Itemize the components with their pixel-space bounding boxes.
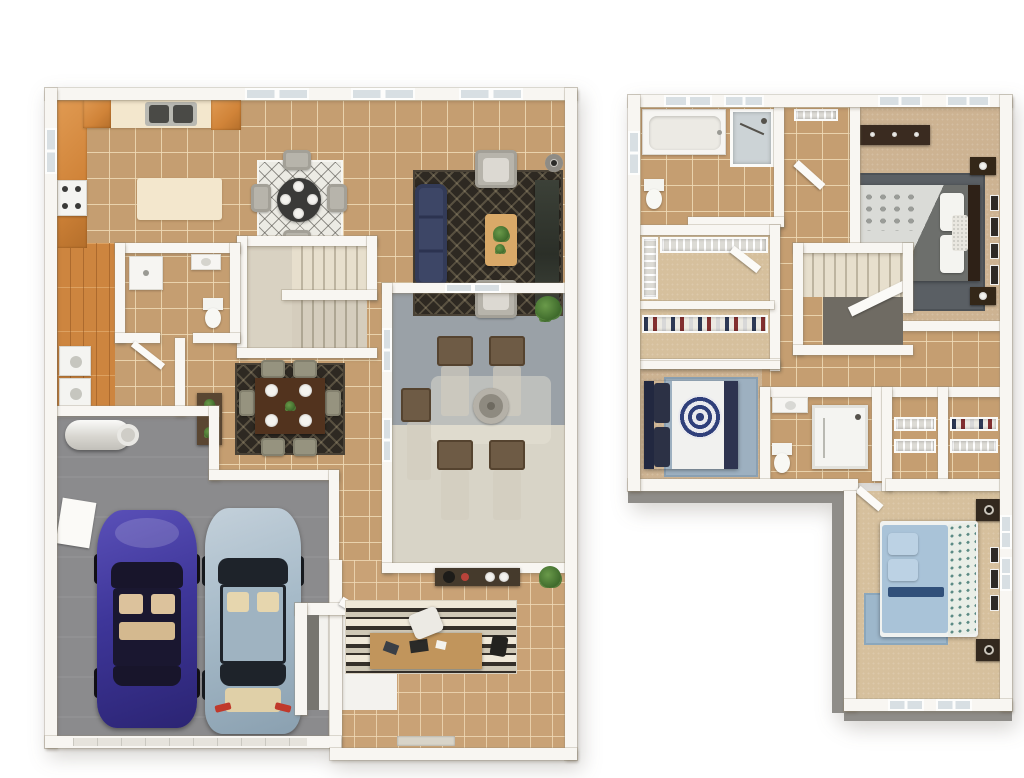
second-floor-plan bbox=[628, 95, 1012, 725]
water-heater bbox=[65, 420, 131, 450]
nightstand bbox=[970, 157, 996, 175]
patio-window bbox=[445, 283, 501, 293]
window bbox=[459, 88, 523, 100]
window bbox=[946, 95, 990, 107]
stairwell-wall bbox=[793, 243, 803, 355]
window bbox=[878, 95, 922, 107]
breakfast-chair bbox=[283, 150, 311, 170]
patio-lounger bbox=[441, 366, 469, 416]
entry-door-opening bbox=[307, 615, 319, 710]
powder-room-wall bbox=[115, 243, 125, 343]
dining-chair bbox=[239, 390, 255, 416]
window bbox=[245, 88, 309, 100]
patio-window bbox=[382, 328, 392, 372]
linen-wall bbox=[938, 387, 948, 491]
bedroom-3-window bbox=[1000, 557, 1012, 591]
dining-chair bbox=[261, 438, 285, 456]
dining-chair bbox=[293, 360, 317, 378]
toilet-bowl bbox=[774, 453, 790, 473]
dining-chair bbox=[261, 360, 285, 378]
exterior-wall bbox=[844, 699, 1012, 711]
office-plant bbox=[539, 566, 561, 588]
wall-art bbox=[990, 195, 999, 211]
window bbox=[664, 95, 712, 107]
stair-wall bbox=[237, 348, 377, 358]
garage-wall bbox=[209, 406, 219, 480]
powder-room-wall bbox=[193, 333, 240, 343]
shower-stall bbox=[129, 256, 163, 290]
nightstand bbox=[976, 639, 1002, 661]
wall-art bbox=[990, 595, 999, 611]
stairwell-wall bbox=[903, 243, 913, 313]
patio-plant bbox=[535, 296, 561, 320]
window bbox=[628, 131, 640, 175]
patio-chair bbox=[437, 440, 473, 470]
wall-art bbox=[990, 569, 999, 589]
powder-room-wall bbox=[115, 333, 160, 343]
powder-room-wall bbox=[115, 243, 240, 253]
garage-wall bbox=[209, 470, 339, 480]
closet-wall bbox=[640, 225, 780, 235]
first-floor-plan bbox=[45, 88, 577, 760]
dryer bbox=[59, 378, 91, 408]
vanity-sink bbox=[772, 397, 808, 413]
kitchen-sink bbox=[145, 102, 197, 126]
nightstand bbox=[970, 287, 996, 305]
closet-wall bbox=[770, 225, 780, 371]
bathroom-2-wall bbox=[872, 387, 882, 481]
window bbox=[936, 699, 972, 711]
entry-console bbox=[435, 568, 520, 586]
wall-art bbox=[990, 547, 999, 563]
exterior-wall bbox=[1000, 95, 1012, 711]
patio-window bbox=[382, 418, 392, 462]
exterior-wall-face bbox=[844, 711, 1012, 721]
closet-wall bbox=[640, 301, 774, 309]
blue-car bbox=[205, 508, 301, 734]
nightstand bbox=[976, 499, 1002, 521]
garage-door bbox=[73, 738, 307, 746]
entry-wall bbox=[295, 603, 307, 715]
bedroom-wall bbox=[886, 479, 1000, 491]
coffee-table bbox=[485, 214, 517, 266]
laundry-wall bbox=[175, 338, 185, 416]
floor-lamp bbox=[545, 154, 563, 172]
patio-chair bbox=[437, 336, 473, 366]
bedroom-2-bed bbox=[644, 381, 738, 469]
dresser bbox=[860, 125, 930, 145]
wall-art bbox=[990, 243, 999, 259]
exterior-wall bbox=[45, 88, 57, 748]
bathroom-wall bbox=[774, 107, 784, 227]
exterior-wall bbox=[844, 491, 856, 711]
navy-sofa bbox=[415, 184, 447, 286]
toilet-bowl bbox=[646, 189, 662, 209]
wall-art bbox=[990, 265, 999, 285]
linen-shelf bbox=[950, 417, 998, 431]
garden-tub bbox=[642, 109, 726, 155]
linen-shelf bbox=[894, 439, 936, 453]
fire-pit bbox=[473, 388, 509, 424]
powder-sink bbox=[191, 254, 221, 270]
kitchen-window bbox=[45, 128, 57, 174]
walk-in-closet-shelf bbox=[642, 237, 658, 299]
linen-shelf bbox=[950, 439, 998, 453]
patio-side-chair bbox=[401, 388, 431, 422]
bedroom-3-bed bbox=[880, 521, 978, 637]
patio-lounger bbox=[493, 470, 521, 520]
breakfast-chair bbox=[251, 184, 271, 212]
office-bag bbox=[489, 635, 508, 657]
floor-plan-image bbox=[0, 0, 1024, 778]
breakfast-chair bbox=[327, 184, 347, 212]
garage-wall bbox=[57, 406, 219, 416]
linen-shelf bbox=[894, 417, 936, 431]
exterior-wall-face bbox=[832, 491, 844, 713]
toilet-bowl bbox=[205, 308, 221, 328]
second-closet-rod bbox=[642, 315, 768, 333]
towel-rack bbox=[794, 109, 838, 121]
patio-lounger bbox=[407, 422, 431, 480]
exterior-wall bbox=[565, 88, 577, 760]
stairs-lower-flight bbox=[292, 300, 367, 348]
stair-divider-wall bbox=[282, 290, 377, 300]
exterior-wall-face bbox=[628, 491, 846, 503]
linen-wall bbox=[882, 387, 892, 491]
stairwell-wall bbox=[793, 243, 913, 253]
bedroom-wall bbox=[628, 479, 858, 491]
armchair bbox=[475, 150, 517, 188]
front-door-threshold bbox=[397, 736, 455, 746]
bathroom-2-wall bbox=[760, 387, 770, 481]
dining-chair bbox=[293, 438, 317, 456]
glass-shower bbox=[730, 109, 774, 167]
patio-chair bbox=[489, 440, 525, 470]
office-wall bbox=[330, 560, 342, 748]
dining-table bbox=[255, 378, 325, 434]
breakfast-table bbox=[277, 178, 321, 222]
bedroom-3-window bbox=[1000, 515, 1012, 549]
stairs-upper-flight bbox=[292, 246, 367, 290]
desk bbox=[370, 633, 482, 669]
kitchen-island bbox=[137, 178, 222, 220]
window bbox=[351, 88, 415, 100]
electrical-panel bbox=[56, 498, 97, 549]
patio-chair bbox=[489, 336, 525, 366]
window bbox=[724, 95, 764, 107]
walk-in-closet-shelf bbox=[660, 237, 768, 253]
window bbox=[888, 699, 924, 711]
washer bbox=[59, 346, 91, 376]
shower-stall-2 bbox=[812, 405, 868, 469]
purple-car bbox=[97, 510, 197, 728]
powder-room-wall bbox=[230, 243, 240, 343]
patio-lounger bbox=[441, 470, 469, 520]
dining-chair bbox=[325, 390, 341, 416]
wall-art bbox=[990, 217, 999, 237]
bedroom-2-wall bbox=[640, 361, 780, 369]
kitchen-fridge-cabinet bbox=[211, 100, 241, 130]
stair-wall bbox=[237, 236, 377, 246]
exterior-wall bbox=[330, 748, 577, 760]
kitchen-cabinet-block bbox=[83, 100, 111, 128]
range-stove bbox=[57, 180, 87, 216]
stairwell-wall bbox=[793, 345, 913, 355]
